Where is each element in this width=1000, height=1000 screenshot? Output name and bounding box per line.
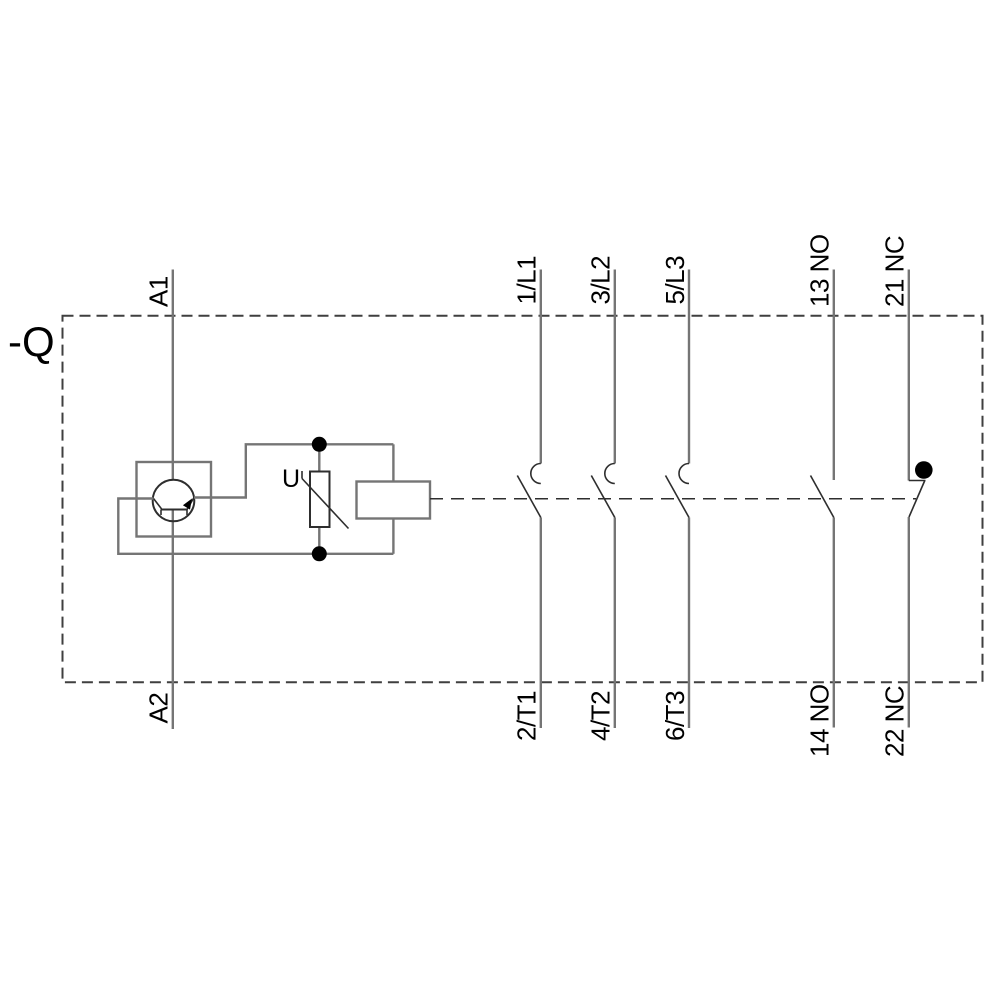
contactor-schematic-page: -Q bbox=[0, 0, 1000, 1000]
terminal-label-14no: 14 NO bbox=[805, 684, 835, 757]
varistor-voltage-label: U bbox=[282, 465, 300, 493]
coil-circuit: U bbox=[118, 270, 430, 730]
aux-no-contact-blade bbox=[811, 476, 834, 518]
aux-nc-contact-blade bbox=[909, 481, 925, 518]
pole1-fixed-contact-hook bbox=[531, 464, 541, 484]
junction-node-bottom bbox=[312, 546, 327, 561]
device-tag-label: -Q bbox=[8, 318, 55, 365]
terminal-label-a2: A2 bbox=[144, 693, 174, 724]
aux-nc-contact-node bbox=[915, 461, 933, 479]
pole2-fixed-contact-hook bbox=[605, 464, 615, 484]
terminal-label-5l3: 5/L3 bbox=[660, 256, 690, 305]
terminal-label-13no: 13 NO bbox=[805, 234, 835, 307]
terminal-label-6t3: 6/T3 bbox=[660, 691, 690, 741]
pole3-fixed-contact-hook bbox=[679, 464, 689, 484]
varistor-body bbox=[310, 472, 330, 528]
terminal-label-1l1: 1/L1 bbox=[512, 256, 542, 305]
pole2-contact-blade bbox=[591, 476, 615, 518]
aux-contact-nc bbox=[909, 270, 933, 728]
transistor-emitter-arrow-icon bbox=[183, 499, 192, 510]
terminal-label-2t1: 2/T1 bbox=[512, 691, 542, 741]
pole1-contact-blade bbox=[517, 476, 541, 518]
coil-body bbox=[357, 482, 431, 519]
terminal-label-4t2: 4/T2 bbox=[586, 691, 616, 741]
terminal-label-3l2: 3/L2 bbox=[586, 256, 616, 305]
contactor-wiring-diagram: -Q bbox=[0, 0, 1000, 1000]
junction-node-top bbox=[312, 437, 327, 452]
terminal-label-21nc: 21 NC bbox=[880, 236, 910, 307]
pole3-contact-blade bbox=[666, 476, 690, 518]
terminal-label-a1: A1 bbox=[144, 276, 174, 307]
terminal-label-22nc: 22 NC bbox=[880, 686, 910, 757]
